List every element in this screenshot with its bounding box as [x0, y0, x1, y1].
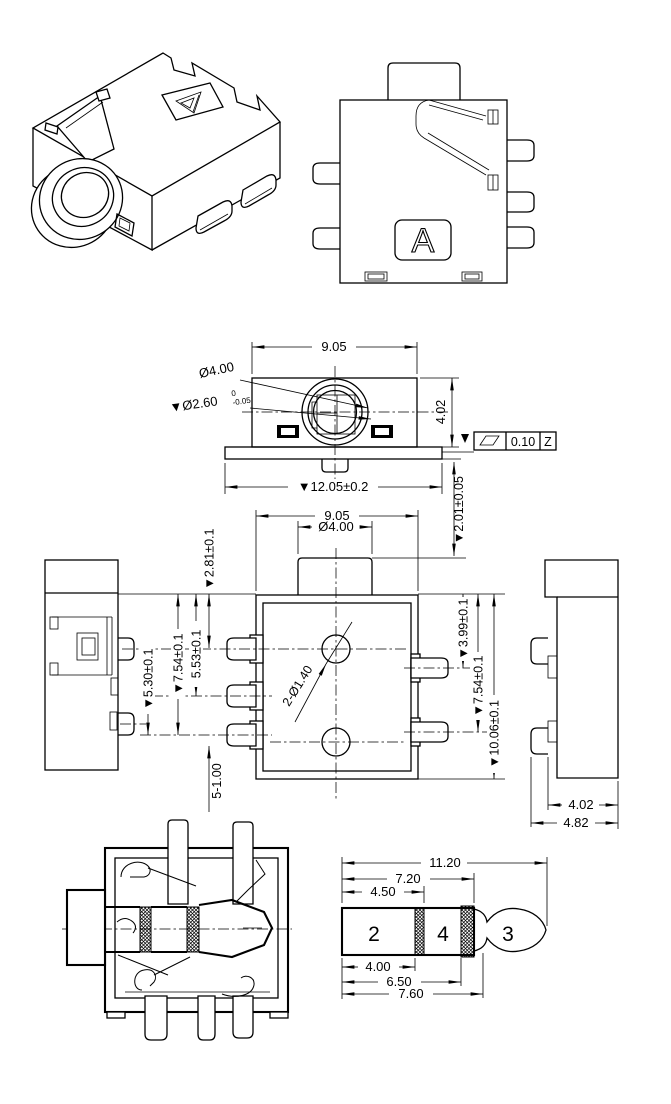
plug-sleeve-section: [67, 890, 105, 965]
dim-plug-overall: 11.20: [429, 855, 461, 870]
gdt-tolerance: 0.10: [511, 435, 535, 449]
plug-view: 2 4 3 11.20 7.20 4.50 4.00 6.50 7.60: [342, 855, 547, 1001]
plan-view: 2-Ø1.40 9.05 Ø4.00 ▼2.81±0.1: [118, 508, 505, 812]
plug-band2: [461, 906, 474, 957]
technical-drawing: A 9.05 Ø4.00 ▼Ø2.60 0 -0.05: [0, 0, 671, 1104]
dim-barrel-dia: Ø4.00: [198, 359, 236, 381]
section-view: [62, 820, 292, 1040]
front-view: 9.05 Ø4.00 ▼Ø2.60 0 -0.05 4.02 0.10 Z ▼1…: [168, 339, 556, 558]
dim-bore-dia: ▼Ø2.60: [169, 393, 219, 415]
dim-right-pin2-offset: ▼7.54±0.1: [472, 655, 486, 716]
dim-bore-tol-lower: -0.05: [232, 396, 252, 408]
plug-insulator-band: [187, 907, 199, 952]
plug-label-sleeve: 2: [368, 923, 380, 946]
plug-insulator-band: [140, 907, 151, 952]
plug-label-ring: 4: [437, 923, 449, 946]
dim-pin2-offset: 5.53±0.1: [190, 630, 204, 679]
flatness-symbol-icon: [480, 436, 499, 445]
dim-pin3-offset: ▼7.54±0.1: [172, 633, 186, 694]
dim-overall-depth: 4.82: [563, 815, 588, 830]
dim-pin1-offset: ▼2.81±0.1: [203, 528, 217, 589]
datum-triangle-icon: [461, 434, 469, 443]
dim-boss-height: ▼2.01±0.05: [452, 476, 466, 544]
left-side-view: [45, 560, 146, 770]
drawing-sheet: A 9.05 Ø4.00 ▼Ø2.60 0 -0.05: [0, 0, 671, 1104]
dim-pin-width: 5-1.00: [210, 763, 224, 798]
dim-plug-ring-end: 7.20: [395, 871, 420, 886]
top-view: A: [313, 63, 534, 283]
gdt-datum: Z: [544, 435, 552, 449]
isometric-view: [17, 53, 280, 262]
plug-band1: [415, 908, 424, 955]
dim-holes: 2-Ø1.40: [280, 663, 316, 709]
dim-right-pin1-offset: ▼3.99±0.1: [457, 598, 471, 659]
dim-plug-sleeve-len: 4.00: [365, 959, 390, 974]
dim-depth: 4.02: [568, 797, 593, 812]
dim-plug-neck: 7.60: [398, 986, 423, 1001]
dim-body-length: ▼10.06±0.1: [488, 700, 502, 768]
dim-boss-dia: Ø4.00: [318, 519, 353, 534]
dim-front-height: 4.02: [434, 400, 448, 424]
right-side-view: 4.02 4.82: [531, 560, 618, 830]
dim-plug-band1-end: 4.50: [370, 884, 395, 899]
marking-letter: A: [412, 222, 435, 260]
dim-pin-span: ▼5.30±0.1: [142, 648, 156, 709]
dim-flange-width: ▼12.05±0.2: [298, 479, 369, 494]
dim-front-width: 9.05: [321, 339, 346, 354]
plug-label-tip: 3: [502, 923, 514, 946]
